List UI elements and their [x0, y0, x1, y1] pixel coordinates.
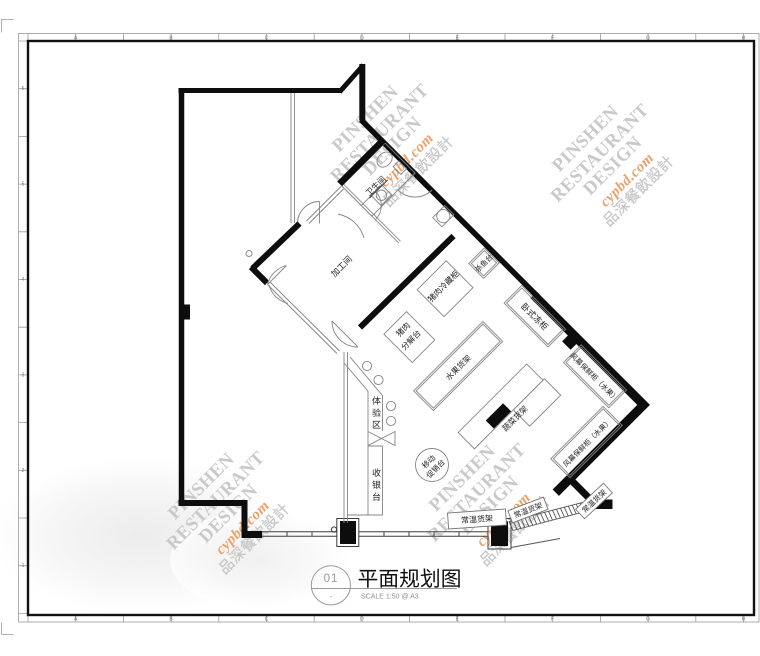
svg-text:3: 3	[22, 372, 25, 378]
svg-text:D: D	[360, 617, 364, 623]
svg-text:1: 1	[22, 563, 25, 569]
svg-text:C: C	[265, 617, 269, 623]
svg-text:-: -	[330, 592, 333, 601]
svg-text:2: 2	[22, 468, 25, 474]
svg-text:5: 5	[22, 182, 25, 188]
svg-text:4: 4	[22, 277, 25, 283]
svg-text:6: 6	[22, 86, 25, 92]
svg-text:SCALE 1:50 @ A3: SCALE 1:50 @ A3	[361, 594, 419, 601]
svg-text:01: 01	[324, 573, 339, 585]
svg-text:F: F	[551, 617, 554, 623]
svg-text:H: H	[742, 617, 746, 623]
svg-text:G: G	[646, 617, 650, 623]
